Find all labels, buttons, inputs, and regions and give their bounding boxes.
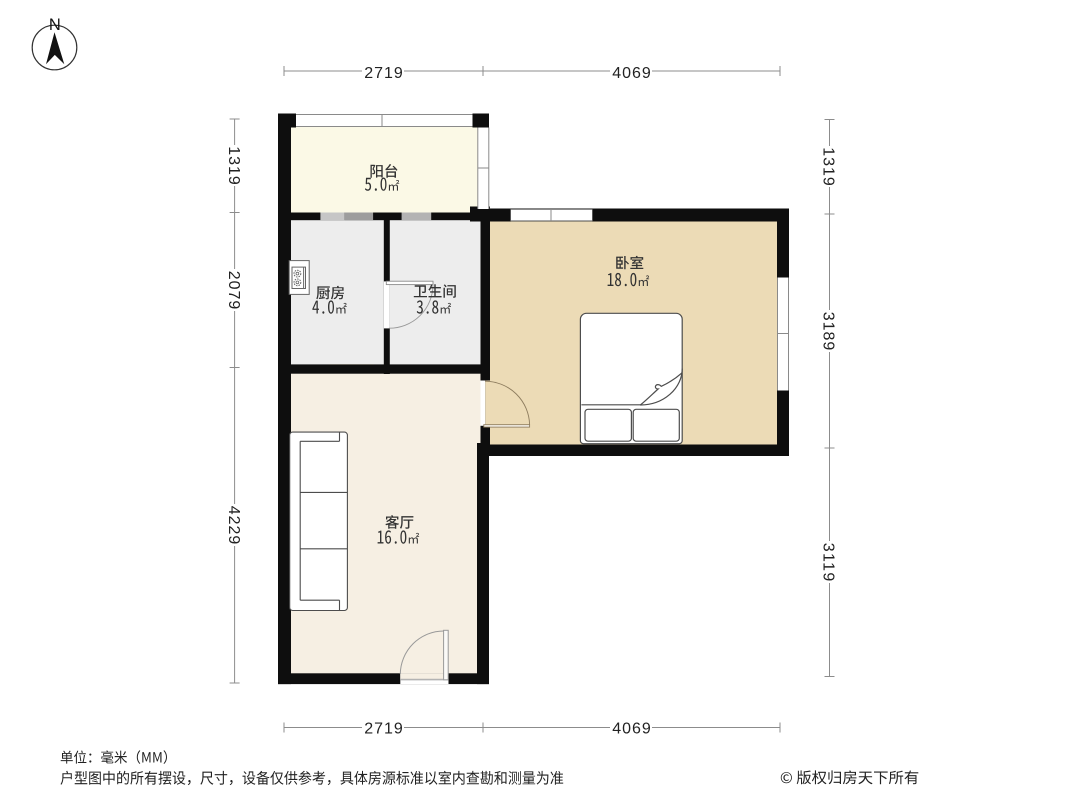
svg-text:1319: 1319 xyxy=(225,146,242,185)
svg-text:1319: 1319 xyxy=(820,147,837,186)
svg-text:3189: 3189 xyxy=(820,312,837,351)
svg-text:4069: 4069 xyxy=(612,65,651,82)
svg-text:4069: 4069 xyxy=(612,721,651,738)
svg-text:2719: 2719 xyxy=(364,721,403,738)
svg-text:4229: 4229 xyxy=(225,506,242,545)
svg-text:2079: 2079 xyxy=(225,271,242,310)
svg-text:N: N xyxy=(49,16,61,34)
svg-text:3119: 3119 xyxy=(820,543,837,582)
svg-text:2719: 2719 xyxy=(364,65,403,82)
